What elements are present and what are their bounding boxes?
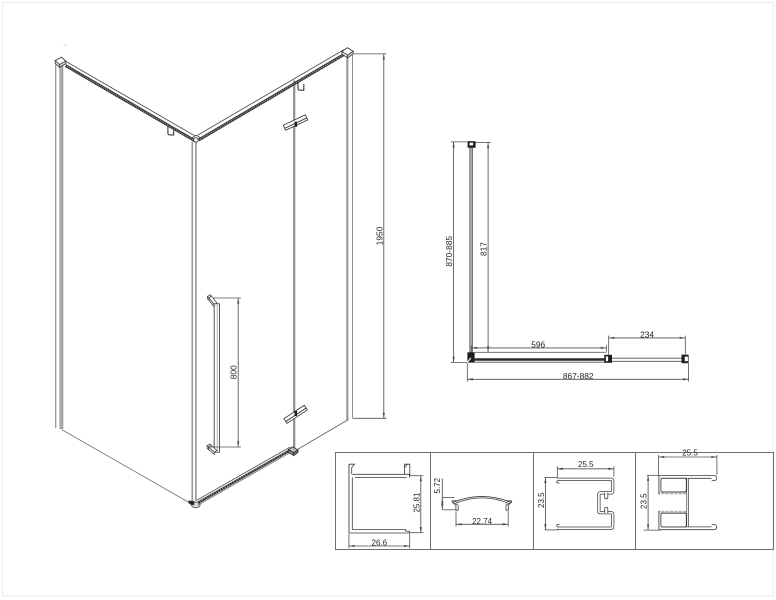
svg-text:234: 234 (640, 329, 654, 339)
svg-text:870-885: 870-885 (444, 236, 454, 267)
svg-text:25.5: 25.5 (578, 460, 594, 469)
svg-text:22.74: 22.74 (472, 517, 493, 526)
svg-text:25.81: 25.81 (412, 492, 421, 513)
svg-text:25.5: 25.5 (682, 449, 698, 458)
svg-text:817: 817 (479, 242, 489, 256)
svg-text:1950: 1950 (374, 226, 384, 245)
svg-text:867-882: 867-882 (563, 371, 594, 381)
svg-text:5.72: 5.72 (433, 477, 442, 493)
svg-text:26.6: 26.6 (372, 539, 388, 548)
svg-text:23.5: 23.5 (537, 492, 546, 508)
svg-text:596: 596 (531, 339, 545, 349)
svg-text:23.5: 23.5 (640, 493, 649, 509)
svg-text:800: 800 (229, 365, 239, 379)
